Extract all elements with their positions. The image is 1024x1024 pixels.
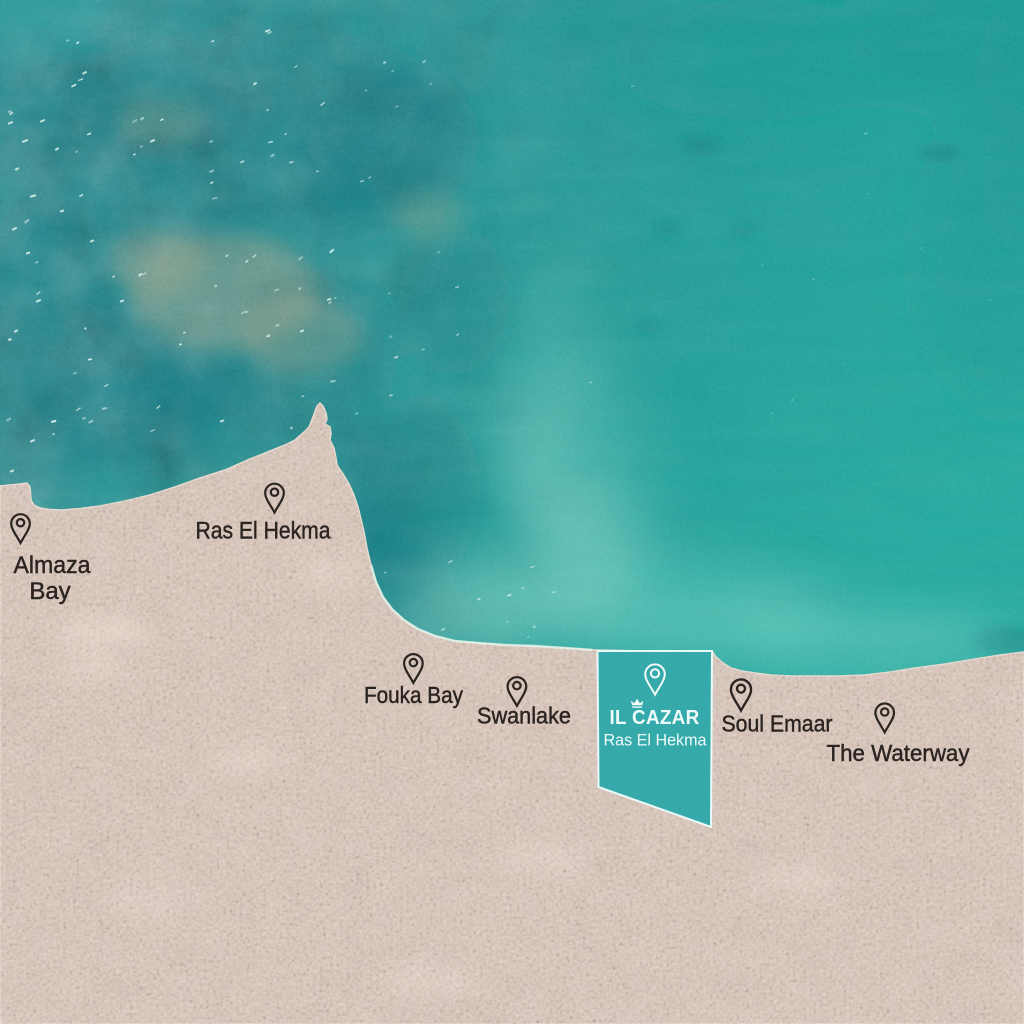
svg-text:IL CAZAR: IL CAZAR: [610, 707, 700, 729]
svg-text:Soul Emaar: Soul Emaar: [722, 711, 833, 737]
svg-text:Ras El Hekma: Ras El Hekma: [196, 518, 332, 545]
svg-text:Fouka Bay: Fouka Bay: [364, 682, 463, 708]
svg-text:The Waterway: The Waterway: [827, 740, 970, 766]
svg-text:Swanlake: Swanlake: [477, 703, 571, 729]
svg-text:Ras El Hekma: Ras El Hekma: [604, 731, 708, 750]
svg-text:Almaza: Almaza: [14, 552, 92, 579]
svg-text:Bay: Bay: [29, 578, 70, 605]
